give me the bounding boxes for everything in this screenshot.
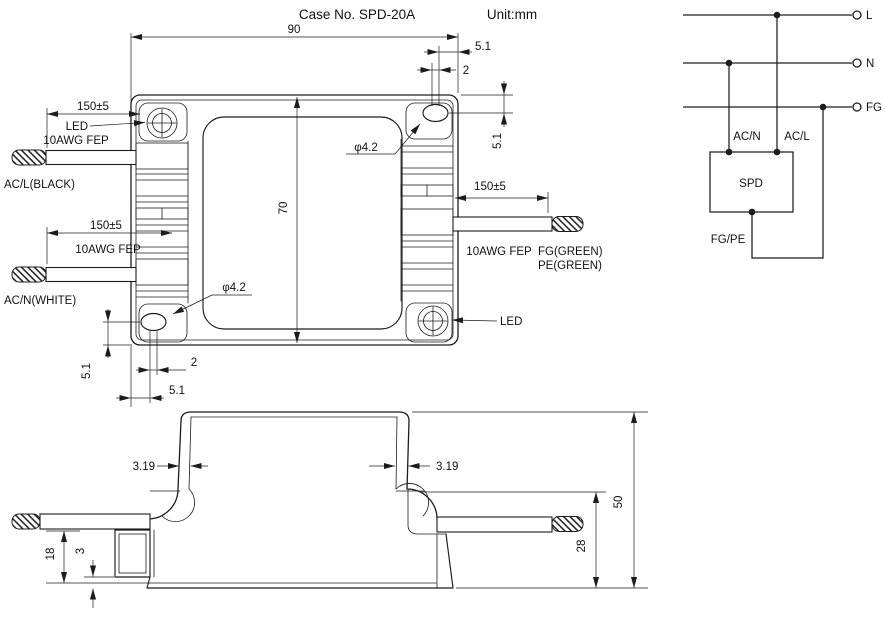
- junction-dot: [726, 60, 733, 67]
- input-acl-label: AC/L: [784, 131, 810, 143]
- junction-dot: [774, 12, 781, 19]
- top-view: 90 70 5.1 2 5.1: [4, 24, 603, 407]
- wire-fg: [453, 217, 583, 232]
- wire-acn-name-label: AC/N(WHITE): [4, 295, 76, 307]
- callout-hole-dia-top: φ4.2: [346, 124, 420, 154]
- dim-wire-fg-length-label: 150±5: [474, 181, 506, 193]
- wire-acl-name-label: AC/L(BLACK): [4, 179, 75, 191]
- wire-acn-stripped-end: [12, 267, 46, 282]
- wire-fg-name-label: FG(GREEN): [538, 246, 603, 258]
- header: Case No. SPD-20A Unit:mm: [299, 7, 537, 22]
- wire-fg-gauge-label: 10AWG FEP: [466, 246, 532, 258]
- dim-foot-clearance: 3: [75, 548, 114, 608]
- dim-wire-acn: 150±5 10AWG FEP AC/N(WHITE): [4, 220, 172, 307]
- unit-label: Unit:mm: [487, 7, 537, 22]
- wire-acl-stripped-end: [12, 150, 46, 165]
- corner-housing-bottom-left: [139, 304, 187, 342]
- dim-foot-clearance-label: 3: [75, 548, 87, 554]
- dim-wire-acn-length-label: 150±5: [90, 220, 122, 232]
- side-case-outline: [115, 412, 453, 588]
- drawing-page: Case No. SPD-20A Unit:mm: [0, 0, 885, 620]
- side-wire-left-stripped-end: [12, 514, 40, 529]
- mounting-slot-bottom-left: [141, 314, 166, 331]
- led-bottom-right-label: LED: [500, 316, 522, 328]
- corner-housing-top-right: [406, 103, 452, 139]
- dim-case-height-label: 70: [278, 202, 290, 215]
- led-top-left-label: LED: [66, 121, 88, 133]
- terminal-n: [853, 59, 861, 67]
- dim-case-width-label: 90: [288, 24, 301, 36]
- side-wire-left: [12, 514, 150, 529]
- side-wire-right-stripped-end: [552, 517, 583, 532]
- hole-dia-top-label: φ4.2: [354, 142, 377, 154]
- side-foot-left: [115, 530, 150, 577]
- dim-wall-right: 3.19: [369, 461, 458, 473]
- wire-acn: [12, 267, 136, 282]
- technical-drawing: Case No. SPD-20A Unit:mm: [0, 0, 885, 620]
- input-acn-label: AC/N: [733, 131, 760, 143]
- dim-wire-height-label: 28: [576, 540, 588, 553]
- dim-lead-height: 18: [45, 531, 150, 583]
- led-indicator-top-left: [147, 108, 177, 138]
- dim-slot-pitch-top-label: 2: [463, 65, 469, 77]
- wire-pe-name-label: PE(GREEN): [538, 260, 602, 272]
- wire-acn-gauge-label: 10AWG FEP: [75, 244, 141, 256]
- wire-acl: [12, 150, 136, 165]
- dim-total-height-label: 50: [613, 496, 625, 509]
- mounting-slot-top-right: [423, 105, 448, 122]
- wire-fg-stripped-end: [552, 217, 583, 232]
- terminal-fg-label: FG: [866, 102, 882, 114]
- ground-label: FG/PE: [711, 234, 746, 246]
- terminal-l: [853, 11, 861, 19]
- dim-lead-height-label: 18: [45, 548, 57, 561]
- dim-wall-left-label: 3.19: [133, 461, 155, 473]
- dim-total-height: 50: [412, 412, 648, 588]
- spd-label: SPD: [739, 178, 763, 190]
- side-wire-right: [437, 517, 583, 533]
- corner-housing-bottom-right: [406, 303, 452, 342]
- left-flange-details: [136, 141, 188, 303]
- dim-slot-edge-bottom-label: 5.1: [169, 385, 185, 397]
- case-number-label: Case No. SPD-20A: [299, 7, 415, 22]
- dim-slot-pitch-bottom-label: 2: [191, 357, 197, 369]
- dim-case-height: 70: [278, 97, 297, 343]
- dim-wire-acl: 150±5 LED 10AWG FEP AC/L(BLACK): [4, 101, 145, 191]
- terminal-fg: [853, 103, 861, 111]
- callout-hole-dia-bottom: φ4.2: [173, 282, 252, 314]
- side-view: 3.19 3.19 18 3 28: [12, 412, 648, 608]
- dim-wire-acl-length-label: 150±5: [77, 101, 109, 113]
- dim-slot-edge-top-label: 5.1: [475, 41, 491, 53]
- led-indicator-bottom-right: [418, 306, 448, 336]
- case-outline: [131, 95, 458, 345]
- terminal-n-label: N: [866, 58, 874, 70]
- dim-wall-left: 3.19: [133, 461, 208, 473]
- corner-housing-top-left: [139, 103, 187, 141]
- dim-slot-edge-top-vert-label: 5.1: [492, 133, 504, 149]
- hole-dia-bottom-label: φ4.2: [222, 282, 245, 294]
- wiring-diagram: L N FG AC/N AC/L SPD FG/PE: [683, 10, 882, 258]
- dim-slot-edge-bottom-vert-label: 5.1: [81, 363, 93, 379]
- callout-led-bottom-right: LED: [452, 316, 522, 328]
- terminal-l-label: L: [866, 10, 873, 22]
- dim-case-width: 90: [131, 24, 458, 112]
- dim-wall-right-label: 3.19: [436, 461, 458, 473]
- right-flange-details: [401, 139, 453, 301]
- wire-acl-gauge-label: 10AWG FEP: [43, 135, 109, 147]
